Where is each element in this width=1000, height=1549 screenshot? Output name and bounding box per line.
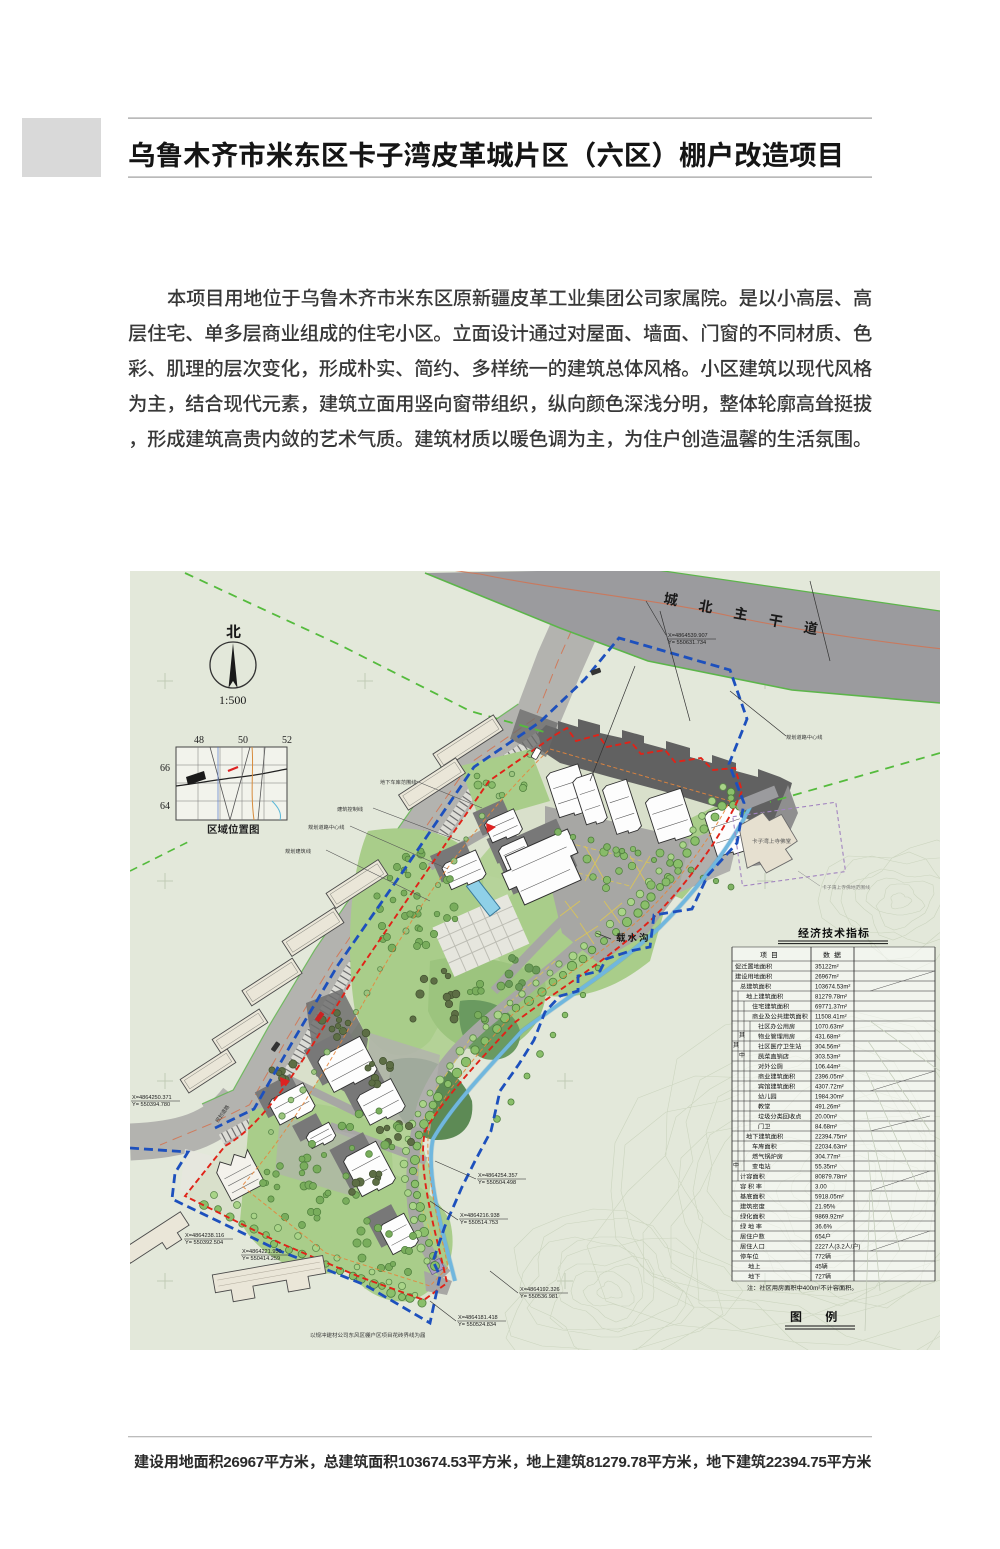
svg-text:36.6%: 36.6%: [815, 1225, 833, 1231]
svg-text:64: 64: [160, 801, 170, 812]
svg-text:304.56m²: 304.56m²: [815, 1045, 840, 1051]
svg-text:9869.92m²: 9869.92m²: [815, 1215, 844, 1221]
svg-text:Y= 550631.734: Y= 550631.734: [668, 640, 706, 646]
svg-text:11508.41m²: 11508.41m²: [815, 1015, 847, 1021]
svg-text:727辆: 727辆: [815, 1273, 831, 1281]
svg-text:Y= 550536.981: Y= 550536.981: [520, 1294, 558, 1300]
svg-text:81279.78: 81279.78: [586, 1454, 647, 1471]
svg-text:X=4864254.357: X=4864254.357: [478, 1173, 518, 1179]
svg-text:26967: 26967: [223, 1454, 264, 1471]
svg-text:Y= 550524.834: Y= 550524.834: [458, 1322, 496, 1328]
svg-text:Y= 550392.504: Y= 550392.504: [185, 1240, 223, 1246]
svg-text:Y= 550414.259: Y= 550414.259: [242, 1256, 280, 1262]
svg-text:304.77m²: 304.77m²: [815, 1155, 840, 1161]
svg-text:66: 66: [160, 763, 170, 774]
svg-text:1070.63m²: 1070.63m²: [815, 1025, 844, 1031]
svg-text:491.26m²: 491.26m²: [815, 1105, 840, 1111]
svg-text:22034.63m²: 22034.63m²: [815, 1145, 847, 1151]
svg-text:22394.75m²: 22394.75m²: [815, 1135, 847, 1141]
svg-text:2396.05m²: 2396.05m²: [815, 1075, 844, 1081]
svg-text:22394.75: 22394.75: [766, 1454, 828, 1471]
svg-text:81279.78m²: 81279.78m²: [815, 995, 847, 1001]
svg-text:103674.53m²: 103674.53m²: [815, 985, 850, 991]
svg-text:48: 48: [194, 735, 204, 746]
svg-text:20.00m²: 20.00m²: [815, 1115, 837, 1121]
svg-text:X=4864181.418: X=4864181.418: [458, 1315, 498, 1321]
svg-text:5918.05m²: 5918.05m²: [815, 1195, 844, 1201]
svg-text:26967m²: 26967m²: [815, 975, 839, 981]
svg-text:772辆: 772辆: [815, 1253, 831, 1261]
svg-text:1984.30m²: 1984.30m²: [815, 1095, 844, 1101]
svg-text:Y= 550514.753: Y= 550514.753: [460, 1220, 498, 1226]
svg-text:Y= 550504.498: Y= 550504.498: [478, 1180, 516, 1186]
svg-text:35122m²: 35122m²: [815, 965, 839, 971]
svg-text:3.00: 3.00: [815, 1185, 827, 1191]
svg-text:654户: 654户: [815, 1233, 831, 1241]
svg-text:4307.72m²: 4307.72m²: [815, 1085, 844, 1091]
svg-text:84.68m²: 84.68m²: [815, 1125, 837, 1131]
svg-text:45辆: 45辆: [815, 1263, 828, 1271]
svg-text:69771.37m²: 69771.37m²: [815, 1005, 847, 1011]
svg-text:1:500: 1:500: [219, 693, 246, 707]
svg-text:X=4864192.326: X=4864192.326: [520, 1287, 560, 1293]
svg-text:80879.78m²: 80879.78m²: [815, 1175, 847, 1181]
svg-text:400m²: 400m²: [803, 1285, 821, 1292]
svg-text:Y= 550394.780: Y= 550394.780: [132, 1102, 170, 1108]
svg-text:431.68m²: 431.68m²: [815, 1035, 840, 1041]
svg-text:52: 52: [282, 735, 292, 746]
svg-text:X=4864216.938: X=4864216.938: [460, 1213, 500, 1219]
svg-text:X=4864221.930: X=4864221.930: [242, 1249, 282, 1255]
svg-text:21.95%: 21.95%: [815, 1205, 836, 1211]
svg-text:303.53m²: 303.53m²: [815, 1055, 840, 1061]
svg-text:106.44m²: 106.44m²: [815, 1065, 840, 1071]
svg-text:50: 50: [238, 735, 248, 746]
svg-text:X=4864250.371: X=4864250.371: [132, 1095, 172, 1101]
svg-text:X=4864238.116: X=4864238.116: [185, 1233, 224, 1239]
svg-text:X=4864539.907: X=4864539.907: [668, 633, 708, 639]
svg-text:2227人(3.2人/户): 2227人(3.2人/户): [815, 1243, 860, 1251]
svg-text:103674.53: 103674.53: [398, 1454, 467, 1471]
svg-text:55.35m²: 55.35m²: [815, 1165, 837, 1171]
